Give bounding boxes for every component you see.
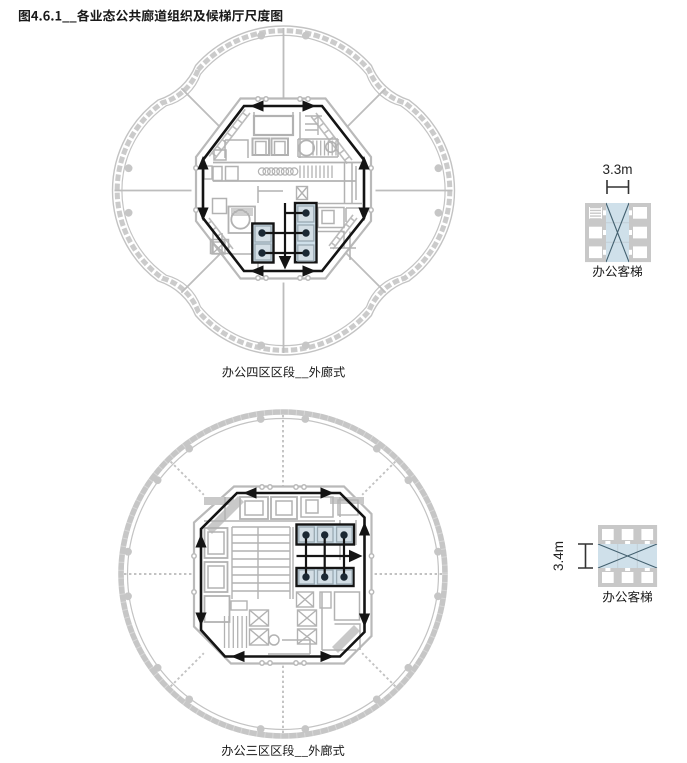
svg-text:3.3m: 3.3m <box>602 162 632 177</box>
svg-text:3.4m: 3.4m <box>551 541 566 571</box>
